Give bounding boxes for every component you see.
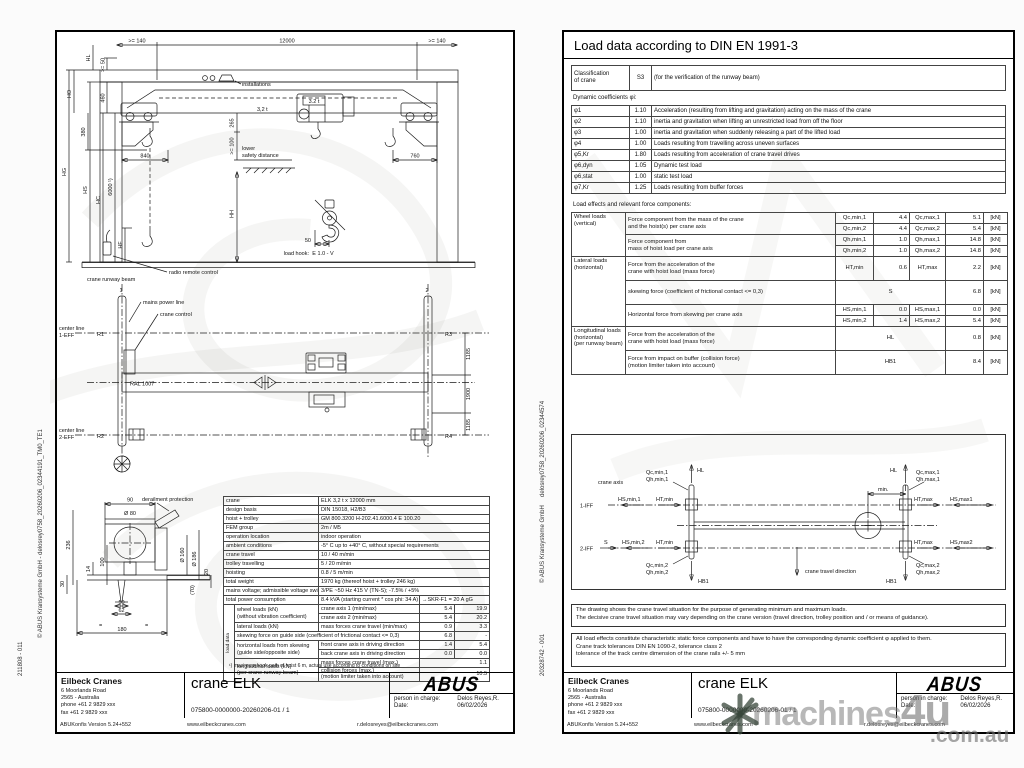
load-group-label: Longitudinal loads(horizontal)(per runwa…: [572, 327, 626, 375]
classification-note: (for the verification of the runway beam…: [652, 66, 1006, 91]
coeff-value: 1.00: [630, 172, 652, 183]
classification-table: Classificationof crane S3 (for the verif…: [571, 65, 1006, 91]
load-symbol: HT,min: [836, 257, 874, 281]
company-name: Eilbeck Cranes: [61, 676, 184, 686]
force-label: HT,min: [656, 540, 673, 546]
load-desc: skewing force (coefficient of frictional…: [626, 281, 836, 305]
spec-table: craneELK 3,2 t x 12000 mm design basisDI…: [223, 496, 490, 682]
spec-value: DIN 15018, H2/B3: [319, 506, 490, 515]
spec-value: 5 / 20 m/min: [319, 560, 490, 569]
annotation-label: load hook:: [284, 251, 310, 257]
annotation-label: 1-IFF: [580, 504, 594, 510]
spec-label: total power consumption: [224, 596, 319, 605]
coeff-desc: inertia and gravitation when suddenly re…: [652, 128, 1006, 139]
load-unit: [kN]: [984, 224, 1008, 235]
force-label: HT,min: [656, 497, 673, 503]
file-reference: delosrey0758_20260206_02344574: [540, 401, 546, 497]
force-label: HL: [890, 468, 897, 474]
load-symbol: HB1: [836, 351, 946, 375]
coeff-symbol: φ6,stat: [572, 172, 630, 183]
table-row: hoisting0.8 / 5 m/min: [224, 569, 490, 578]
abus-logo: ABUS: [390, 673, 513, 694]
spec-value: GM 800.3200 H-202.41.6000.4 E 100.20: [319, 515, 490, 524]
spec-desc: mass forces crane travel (min/max): [319, 623, 420, 632]
load-symbol: Qc,max,2: [910, 224, 946, 235]
load-symbol: Qc,min,1: [836, 213, 874, 224]
coeff-symbol: φ4: [572, 139, 630, 150]
spec-max: 20.2: [455, 614, 490, 623]
coeff-value: 1.10: [630, 117, 652, 128]
annotation-label: crane axis: [598, 480, 623, 486]
spec-value: 10 / 40 m/min: [319, 551, 490, 560]
spec-label: crane travel: [224, 551, 319, 560]
page-title-bar: Load data according to DIN EN 1991-3: [564, 32, 1013, 59]
table-row: φ6,dyn1.05Dynamic test load: [572, 161, 1006, 172]
date-value: 06/02/2026: [457, 703, 509, 709]
annotation-label: safety distance: [242, 153, 279, 159]
dim-label: >= 140: [128, 39, 145, 45]
load-unit: [kN]: [984, 281, 1008, 305]
coefficients-table: φ11.10Acceleration (resulting from lifti…: [571, 105, 1006, 194]
load-unit: [kN]: [984, 246, 1008, 257]
load-symbol: Qh,min,1: [836, 235, 874, 246]
dim-label: 180: [117, 627, 126, 633]
load-value: 2.2: [946, 257, 984, 281]
elevation-view: 3,2 t installations 3.2 t: [62, 39, 475, 277]
annotation-label: 1-EFF: [59, 333, 75, 339]
force-label: Qh,min,2: [646, 570, 668, 576]
dim-label: >= 100: [230, 137, 236, 154]
date-value: 06/02/2026: [960, 703, 1009, 709]
table-row: φ21.10inertia and gravitation when lifti…: [572, 117, 1006, 128]
company-address: 6 Moorlands Road: [61, 688, 184, 694]
spec-value: -5° C up to +40° C, without special requ…: [319, 542, 490, 551]
dim-label: =: [145, 623, 148, 629]
coeff-value: 1.00: [630, 139, 652, 150]
load-value: 5.1: [946, 213, 984, 224]
spec-label: hoisting: [224, 569, 319, 578]
person-label: person in charge:: [394, 696, 457, 702]
drawing-number: 211808 - 011: [18, 642, 24, 676]
rail-number: 2: [425, 288, 428, 294]
drawing-page: 3,2 t installations 3.2 t: [55, 30, 515, 734]
load-unit: [kN]: [984, 316, 1008, 327]
beam-capacity-label: 3,2 t: [257, 107, 268, 113]
spec-max: 19.9: [455, 605, 490, 614]
rail-number: 1: [119, 288, 122, 294]
note-line: The decisive crane travel situation may …: [576, 615, 1001, 623]
dim-label: Ø 80: [124, 511, 136, 517]
coeff-value: 1.05: [630, 161, 652, 172]
abus-logo: ABUS: [897, 673, 1013, 694]
date-label: Date:: [901, 703, 960, 709]
load-value: 14.8: [946, 246, 984, 257]
coeff-value: 1.25: [630, 183, 652, 194]
load-value: 6.8: [946, 281, 984, 305]
table-row: load data wheel loads (kN)(without vibra…: [224, 605, 490, 614]
force-label: HS,min,1: [618, 497, 641, 503]
load-group-label: Wheel loads(vertical): [572, 213, 626, 257]
coefficients-header: Dynamic coefficients φi:: [573, 95, 636, 101]
paint-color-label: RAL 1007: [130, 382, 154, 388]
dim-label: =: [99, 623, 102, 629]
spec-value: 3/PE ~50 Hz 415 V (TN-S); -7.5% / +5%: [319, 587, 490, 596]
spec-value: ELK 3,2 t x 12000 mm: [319, 497, 490, 506]
load-data-page: Load data according to DIN EN 1991-3 Cla…: [562, 30, 1015, 734]
wheel-label: R3: [445, 332, 452, 338]
hoist-capacity-label: 3.2 t: [309, 99, 320, 105]
table-row: ambient conditions-5° C up to +40° C, wi…: [224, 542, 490, 551]
spec-min: 0.9: [420, 623, 455, 632]
force-label: HS,min,2: [622, 540, 645, 546]
table-row: total weight1970 kg (thereof hoist + tro…: [224, 578, 490, 587]
table-row: φ31.00inertia and gravitation when sudde…: [572, 128, 1006, 139]
dim-label: 14: [86, 566, 92, 572]
load-value: 1.4: [874, 316, 910, 327]
load-symbol: HT,max: [910, 257, 946, 281]
person-value: Delos Reyes,R.: [960, 696, 1009, 702]
load-data-side-label: load data: [224, 605, 235, 682]
dim-label: 62: [118, 608, 124, 614]
dim-label: 380: [81, 127, 87, 136]
load-desc: Force component frommass of hoist load p…: [626, 235, 836, 257]
website: www.eilbeckcranes.com: [187, 722, 246, 728]
spec-value: 1970 kg (thereof hoist + trolley 246 kg): [319, 578, 490, 587]
table-row: trolley travelling5 / 20 m/min: [224, 560, 490, 569]
drawing-number: 20328742 - 001: [540, 634, 546, 676]
force-label: HS,max1: [950, 497, 973, 503]
force-label: HT,max: [914, 540, 933, 546]
table-row: crane travel10 / 40 m/min: [224, 551, 490, 560]
notes-drawing: The drawing shows the crane travel situa…: [571, 604, 1006, 627]
spec-min: 0.0: [420, 650, 455, 659]
dim-label: 90: [127, 498, 133, 504]
load-value: 1.0: [874, 246, 910, 257]
load-unit: [kN]: [984, 327, 1008, 351]
hook-type-label: E 1.0 - V: [312, 251, 334, 257]
table-row: horizontal loads from skewing(guide side…: [224, 641, 490, 650]
note-line: tolerance of the track centre dimension …: [576, 651, 1001, 659]
table-row: lateral loads (kN)mass forces crane trav…: [224, 623, 490, 632]
copyright-note: © ABUS Kransysteme GmbH - delosrey0758_2…: [38, 429, 44, 638]
company-name: Eilbeck Cranes: [568, 676, 691, 686]
force-label: S: [604, 540, 608, 546]
load-symbol: HL: [836, 327, 946, 351]
force-label: Qc,min,1: [646, 470, 668, 476]
spec-max: 5.4: [455, 641, 490, 650]
title-block: Eilbeck Cranes 6 Moorlands Road 2565 - A…: [564, 672, 1013, 718]
company-phone: phone +61 2 9829 xxx: [568, 702, 691, 708]
note-line: The drawing shows the crane travel situa…: [576, 607, 1001, 615]
force-label: Qh,max,2: [916, 570, 940, 576]
force-label: Qc,min,2: [646, 563, 668, 569]
spec-min: 5.4: [420, 614, 455, 623]
spec-footnote: ¹) maximum hook path of hoist 6 m, actua…: [229, 663, 400, 669]
coeff-desc: static test load: [652, 172, 1006, 183]
annotation-label: derailment protection: [142, 497, 193, 503]
dim-label: 760: [410, 154, 419, 160]
load-symbol: HS,max,2: [910, 316, 946, 327]
table-row: Force component frommass of hoist load p…: [572, 235, 1008, 246]
table-row: Lateral loads(horizontal) Force from the…: [572, 257, 1008, 281]
table-row: Longitudinal loads(horizontal)(per runwa…: [572, 327, 1008, 351]
software-version: ABUKonfis Version 5.24+552: [60, 722, 131, 728]
load-symbol: Qc,min,2: [836, 224, 874, 235]
dim-label: Ø 186: [192, 552, 198, 567]
company-fax: fax +61 2 9829 xxx: [568, 710, 691, 716]
spec-value: 8.4 kVA (starting current * cos phi: 34 …: [319, 596, 420, 605]
load-value: 14.8: [946, 235, 984, 246]
spec-desc: crane axis 1 (min/max): [319, 605, 420, 614]
annotation-label: crane control: [160, 312, 192, 318]
load-hook-detail: 50 load hook: E 1.0 - V: [284, 200, 345, 257]
spec-label: mains voltage; admissible voltage swing: [224, 587, 319, 596]
force-label: Qh,max,1: [916, 477, 940, 483]
load-symbol: HS,min,1: [836, 305, 874, 316]
spec-value: 2m / M5: [319, 524, 490, 533]
classification-label: Classificationof crane: [572, 66, 630, 91]
table-row: operation locationindoor operation: [224, 533, 490, 542]
spec-value: indoor operation: [319, 533, 490, 542]
spec-label: FEM group: [224, 524, 319, 533]
table-row: skewing force on guide side (coefficient…: [224, 632, 490, 641]
load-unit: [kN]: [984, 235, 1008, 246]
force-label: HS,max2: [950, 540, 973, 546]
document-number: 075800-0000000-20260206-01 / 1: [698, 707, 797, 714]
company-block: Eilbeck Cranes 6 Moorlands Road 2565 - A…: [57, 673, 185, 718]
spec-min: 5.4: [420, 605, 455, 614]
datum-symbol: [114, 456, 130, 472]
spec-label: total weight: [224, 578, 319, 587]
load-unit: [kN]: [984, 351, 1008, 375]
classification-value: S3: [630, 66, 652, 91]
dim-label: 30: [60, 581, 66, 587]
dim-label: 460: [101, 93, 107, 102]
notes-tolerances: All load effects constitute characterist…: [571, 633, 1006, 667]
table-row: Classificationof crane S3 (for the verif…: [572, 66, 1006, 91]
annotation-label: crane runway beam: [87, 277, 136, 283]
load-symbol: S: [836, 281, 946, 305]
table-row: Wheel loads(vertical) Force component fr…: [572, 213, 1008, 224]
date-label: Date:: [394, 703, 457, 709]
force-label: Qc,max,1: [916, 470, 940, 476]
load-value: 4.4: [874, 213, 910, 224]
annotation-label: 2-EFF: [59, 435, 75, 441]
spec-desc: front crane axis in driving direction: [319, 641, 420, 650]
coeff-symbol: φ2: [572, 117, 630, 128]
load-value: 0.0: [946, 305, 984, 316]
dim-label: HG: [62, 168, 68, 176]
coeff-desc: Loads resulting from travelling across u…: [652, 139, 1006, 150]
dim-label: 236: [66, 540, 72, 549]
company-address: 2565 - Australia: [568, 695, 691, 701]
dim-label: 265: [230, 118, 236, 127]
wheel-label: R1: [97, 332, 104, 338]
approval-block: ABUS person in charge:Delos Reyes,R. Dat…: [897, 673, 1013, 718]
table-row: φ5,Kr1.80Loads resulting from accelerati…: [572, 150, 1006, 161]
spec-desc: crane axis 2 (min/max): [319, 614, 420, 623]
load-desc: Force from the acceleration of thecrane …: [626, 257, 836, 281]
website: www.eilbeckcranes.com: [694, 722, 753, 728]
table-row: skewing force (coefficient of frictional…: [572, 281, 1008, 305]
load-symbol: Qh,max,1: [910, 235, 946, 246]
title-block: Eilbeck Cranes 6 Moorlands Road 2565 - A…: [57, 672, 513, 718]
dim-label: HO: [67, 89, 73, 98]
approval-block: ABUS person in charge:Delos Reyes,R. Dat…: [390, 673, 513, 718]
spec-max: 3.3: [455, 623, 490, 632]
load-unit: [kN]: [984, 257, 1008, 281]
spec-label: lateral loads (kN): [235, 623, 319, 632]
note-line: Crane track tolerances DIN EN 1090-2, to…: [576, 644, 1001, 652]
force-label: HB1: [886, 579, 897, 585]
coeff-symbol: φ7,Kr: [572, 183, 630, 194]
coeff-symbol: φ5,Kr: [572, 150, 630, 161]
company-phone: phone +61 2 9829 xxx: [61, 702, 184, 708]
load-unit: [kN]: [984, 213, 1008, 224]
coeff-value: 1.00: [630, 128, 652, 139]
dim-label: HS: [83, 186, 89, 194]
annotation-label: radio remote control: [169, 270, 218, 276]
load-value: 1.0: [874, 235, 910, 246]
table-row: φ11.10Acceleration (resulting from lifti…: [572, 106, 1006, 117]
software-version: ABUKonfis Version 5.24+552: [567, 722, 638, 728]
page-title: Load data according to DIN EN 1991-3: [574, 38, 798, 53]
load-symbol: Qh,min,2: [836, 246, 874, 257]
dim-label: >= 140: [428, 39, 445, 45]
table-row: FEM group2m / M5: [224, 524, 490, 533]
load-symbol: HS,min,2: [836, 316, 874, 327]
dim-label: HH: [230, 210, 236, 218]
coeff-desc: Acceleration (resulting from lifting and…: [652, 106, 1006, 117]
table-row: Force from impact on buffer (collision f…: [572, 351, 1008, 375]
load-value: 5.4: [946, 224, 984, 235]
dim-label: HF: [118, 241, 124, 249]
spec-max: 1.1: [420, 659, 490, 668]
force-label: Qc,max,2: [916, 563, 940, 569]
coeff-value: 1.10: [630, 106, 652, 117]
spec-min: 1.4: [420, 641, 455, 650]
table-row: Horizontal force from skewing per crane …: [572, 305, 1008, 316]
force-label: HL: [697, 468, 704, 474]
force-label: HT,max: [914, 497, 933, 503]
annotation-label: mains power line: [143, 300, 184, 306]
coeff-symbol: φ3: [572, 128, 630, 139]
spec-value: 0.8 / 5 m/min: [319, 569, 490, 578]
load-effects-table: Wheel loads(vertical) Force component fr…: [571, 212, 1008, 375]
force-label: HB1: [698, 579, 709, 585]
detail-view: 90 Ø 80 derailment protection 236 100: [60, 497, 211, 636]
spec-label: horizontal loads from skewing(guide side…: [235, 641, 319, 659]
note-line: All load effects constitute characterist…: [576, 636, 1001, 644]
document-block: crane ELK 075800-0000000-20260206-01 / 1: [692, 673, 897, 718]
table-row: craneELK 3,2 t x 12000 mm: [224, 497, 490, 506]
installations-label: installations: [242, 82, 271, 88]
document-number: 075800-0000000-20260206-01 / 1: [191, 707, 290, 714]
plan-view: crane runway beam 1 2 center line 1-EFF …: [59, 277, 489, 472]
dim-label: >= 50: [101, 58, 107, 72]
load-value: 8.4: [946, 351, 984, 375]
dim-label: 1185: [466, 348, 472, 360]
spec-label: design basis: [224, 506, 319, 515]
dim-label: HC: [96, 196, 102, 204]
table-row: mains voltage; admissible voltage swing3…: [224, 587, 490, 596]
dim-label: Ø 160: [180, 548, 186, 563]
height-dimension-chain: [66, 45, 147, 262]
load-value: 0.0: [874, 305, 910, 316]
dim-label: 20: [204, 569, 210, 575]
coeff-value: 1.80: [630, 150, 652, 161]
annotation-label: center line: [59, 428, 84, 434]
dim-label: 1185: [466, 419, 472, 431]
load-value: 0.8: [946, 327, 984, 351]
spec-max: -: [455, 632, 490, 641]
load-unit: [kN]: [984, 305, 1008, 316]
spec-max: 0.0: [455, 650, 490, 659]
dim-label: min.: [878, 487, 889, 493]
table-row: φ41.00Loads resulting from travelling ac…: [572, 139, 1006, 150]
spec-desc: skewing force on guide side (coefficient…: [235, 632, 420, 641]
load-value: 0.6: [874, 257, 910, 281]
table-row: total power consumption8.4 kVA (starting…: [224, 596, 490, 605]
table-row: φ7,Kr1.25Loads resulting from buffer for…: [572, 183, 1006, 194]
load-value: 4.4: [874, 224, 910, 235]
coeff-desc: Loads resulting from acceleration of cra…: [652, 150, 1006, 161]
person-label: person in charge:: [901, 696, 960, 702]
dim-label: 6000 ¹): [108, 178, 114, 196]
annotation-label: lower: [242, 146, 255, 152]
spec-label: ambient conditions: [224, 542, 319, 551]
document-title: crane ELK: [191, 675, 261, 692]
company-fax: fax +61 2 9829 xxx: [61, 710, 184, 716]
dim-label: (70): [190, 585, 196, 595]
table-row: design basisDIN 15018, H2/B3: [224, 506, 490, 515]
load-value: 5.4: [946, 316, 984, 327]
dim-label: 50: [118, 600, 124, 606]
copyright-note: © ABUS Kransysteme GmbH: [540, 505, 546, 583]
spec-value: →SKR-F1 = 20 A gG: [420, 596, 490, 605]
annotation-label: 2-IFF: [580, 547, 594, 553]
load-effects-header: Load effects and relevant force componen…: [573, 202, 691, 208]
table-row: hoist + trolleyGM 800.3200 H-202.41.6000…: [224, 515, 490, 524]
email: r.delosreyes@eilbeckcranes.com: [864, 722, 945, 728]
load-symbol: HS,max,1: [910, 305, 946, 316]
table-row: φ6,stat1.00static test load: [572, 172, 1006, 183]
company-address: 6 Moorlands Road: [568, 688, 691, 694]
load-symbol: Qh,max,2: [910, 246, 946, 257]
person-value: Delos Reyes,R.: [457, 696, 509, 702]
hoist-trolley: 3.2 t: [297, 94, 354, 139]
dim-label: 50: [305, 238, 311, 244]
spec-label: crane: [224, 497, 319, 506]
company-block: Eilbeck Cranes 6 Moorlands Road 2565 - A…: [564, 673, 692, 718]
load-desc: Force component from the mass of the cra…: [626, 213, 836, 235]
dim-label: 1900: [466, 388, 472, 400]
coeff-symbol: φ1: [572, 106, 630, 117]
spec-label: wheel loads (kN)(without vibration coeff…: [235, 605, 319, 623]
spec-desc: back crane axis in driving direction: [319, 650, 420, 659]
company-address: 2565 - Australia: [61, 695, 184, 701]
dim-label: HL: [86, 54, 92, 61]
travel-situation-diagram: min. crane axis 1-IFF 2-IFF HL HL Qc,min…: [571, 434, 1006, 590]
dim-label: 12000: [279, 39, 294, 45]
dim-label: 100: [100, 557, 106, 566]
document-title: crane ELK: [698, 675, 768, 692]
coeff-symbol: φ6,dyn: [572, 161, 630, 172]
spec-label: operation location: [224, 533, 319, 542]
spec-label: hoist + trolley: [224, 515, 319, 524]
annotation-label: center line: [59, 326, 84, 332]
load-desc: Horizontal force from skewing per crane …: [626, 305, 836, 327]
